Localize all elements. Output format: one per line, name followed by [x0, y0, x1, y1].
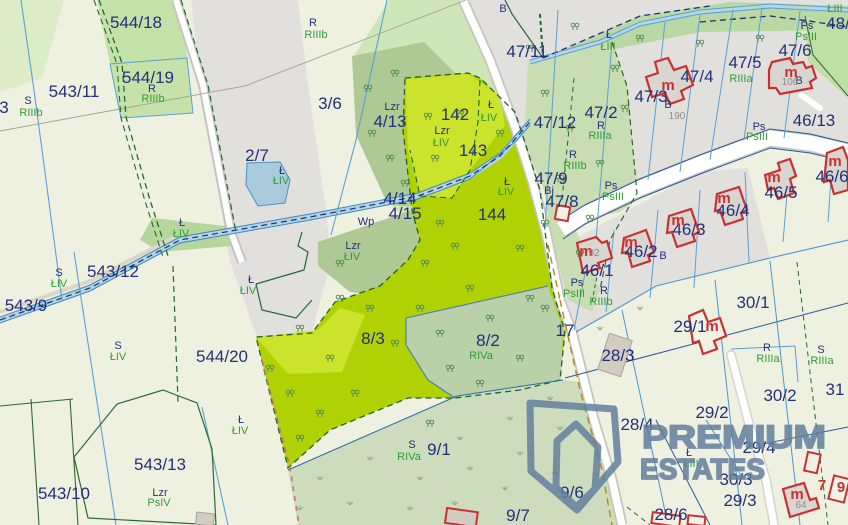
svg-text:47/8: 47/8 — [545, 192, 578, 211]
svg-text:9/7: 9/7 — [506, 506, 530, 525]
svg-text:ŁIV: ŁIV — [173, 228, 190, 240]
svg-text:ŁIV: ŁIV — [344, 251, 361, 263]
svg-text:543/9: 543/9 — [5, 296, 48, 315]
svg-text:m: m — [828, 153, 841, 170]
svg-text:RIIIb: RIIIb — [19, 107, 42, 119]
svg-text:29/1: 29/1 — [673, 317, 706, 336]
svg-text:ŁIII: ŁIII — [827, 3, 842, 15]
svg-text:PsIII: PsIII — [602, 191, 624, 203]
svg-text:3: 3 — [0, 98, 9, 117]
svg-text:PsIII: PsIII — [746, 131, 768, 143]
svg-text:28/6: 28/6 — [654, 505, 687, 524]
svg-text:PsIV: PsIV — [147, 497, 171, 509]
svg-text:ESTATES: ESTATES — [640, 454, 765, 486]
svg-text:B: B — [659, 250, 666, 262]
svg-text:30/2: 30/2 — [763, 386, 796, 405]
svg-text:17: 17 — [556, 321, 575, 340]
svg-text:RIIIb: RIIIb — [141, 93, 164, 105]
svg-text:ŁIV: ŁIV — [232, 425, 249, 437]
svg-text:4/13: 4/13 — [373, 112, 406, 131]
svg-text:PREMIUM: PREMIUM — [642, 419, 826, 455]
svg-text:m: m — [717, 190, 730, 207]
svg-text:Wp: Wp — [358, 216, 375, 228]
svg-text:ŁIV: ŁIV — [433, 137, 450, 149]
svg-text:30/1: 30/1 — [736, 293, 769, 312]
svg-text:S: S — [24, 95, 31, 107]
svg-text:7: 7 — [818, 477, 826, 494]
svg-text:B: B — [499, 3, 506, 15]
svg-text:m: m — [624, 234, 637, 251]
svg-text:47/6: 47/6 — [778, 41, 811, 60]
svg-text:RIIIa: RIIIa — [729, 73, 753, 85]
svg-text:RIIIb: RIIIb — [589, 296, 612, 308]
svg-text:544/20: 544/20 — [196, 347, 248, 366]
svg-text:m: m — [671, 212, 684, 229]
svg-text:46/1: 46/1 — [580, 261, 613, 280]
svg-text:9: 9 — [837, 479, 845, 496]
svg-text:144: 144 — [478, 205, 506, 224]
svg-text:64: 64 — [795, 500, 807, 511]
svg-text:ŁIV: ŁIV — [273, 175, 290, 187]
svg-text:143: 143 — [459, 141, 487, 160]
svg-text:92: 92 — [588, 248, 600, 259]
svg-text:RIIIb: RIIIb — [304, 29, 327, 41]
svg-text:RIVa: RIVa — [397, 451, 422, 463]
svg-text:106: 106 — [782, 77, 799, 88]
svg-text:28/3: 28/3 — [601, 346, 634, 365]
svg-text:47/5: 47/5 — [728, 53, 761, 72]
svg-text:46/13: 46/13 — [793, 111, 836, 130]
svg-text:R: R — [309, 17, 317, 29]
svg-text:543/13: 543/13 — [134, 455, 186, 474]
svg-text:47/11: 47/11 — [506, 42, 547, 61]
svg-text:RIIIa: RIIIa — [810, 355, 834, 367]
svg-text:RIVa: RIVa — [469, 350, 494, 362]
svg-text:ŁIV: ŁIV — [110, 351, 127, 363]
svg-text:ŁIV: ŁIV — [498, 186, 515, 198]
svg-text:29/3: 29/3 — [723, 491, 756, 510]
svg-text:48/: 48/ — [826, 14, 848, 33]
svg-text:3/6: 3/6 — [318, 94, 342, 113]
svg-text:PsIII: PsIII — [563, 288, 585, 300]
svg-text:Ł: Ł — [488, 99, 494, 111]
svg-text:ŁIV: ŁIV — [240, 285, 257, 297]
svg-text:ŁIV: ŁIV — [51, 278, 68, 290]
svg-text:m: m — [705, 318, 718, 335]
svg-text:S: S — [408, 439, 415, 451]
svg-text:RIIIb: RIIIb — [563, 160, 586, 172]
svg-text:47/4: 47/4 — [680, 67, 713, 86]
svg-text:m: m — [767, 169, 780, 186]
svg-text:142: 142 — [441, 105, 469, 124]
svg-text:RIIIa: RIIIa — [588, 130, 612, 142]
svg-text:543/10: 543/10 — [38, 484, 90, 503]
svg-text:2/7: 2/7 — [245, 146, 269, 165]
svg-text:RIIIa: RIIIa — [756, 353, 780, 365]
svg-text:544/18: 544/18 — [110, 13, 162, 32]
svg-text:B: B — [664, 99, 671, 111]
svg-text:m: m — [661, 77, 674, 94]
svg-text:8/2: 8/2 — [476, 331, 500, 350]
svg-text:190: 190 — [669, 111, 686, 122]
svg-text:ŁIII: ŁIII — [600, 41, 615, 53]
svg-text:Lzr: Lzr — [434, 125, 450, 137]
svg-text:543/11: 543/11 — [49, 82, 100, 101]
svg-text:31: 31 — [826, 380, 845, 399]
svg-text:4/15: 4/15 — [388, 204, 421, 223]
svg-text:Ł: Ł — [606, 29, 612, 41]
svg-text:8/3: 8/3 — [361, 329, 385, 348]
svg-text:ŁIV: ŁIV — [481, 112, 498, 124]
svg-text:9/1: 9/1 — [427, 440, 451, 459]
svg-text:47/12: 47/12 — [534, 113, 577, 132]
svg-text:543/12: 543/12 — [87, 262, 139, 281]
svg-text:PsIII: PsIII — [795, 31, 817, 43]
